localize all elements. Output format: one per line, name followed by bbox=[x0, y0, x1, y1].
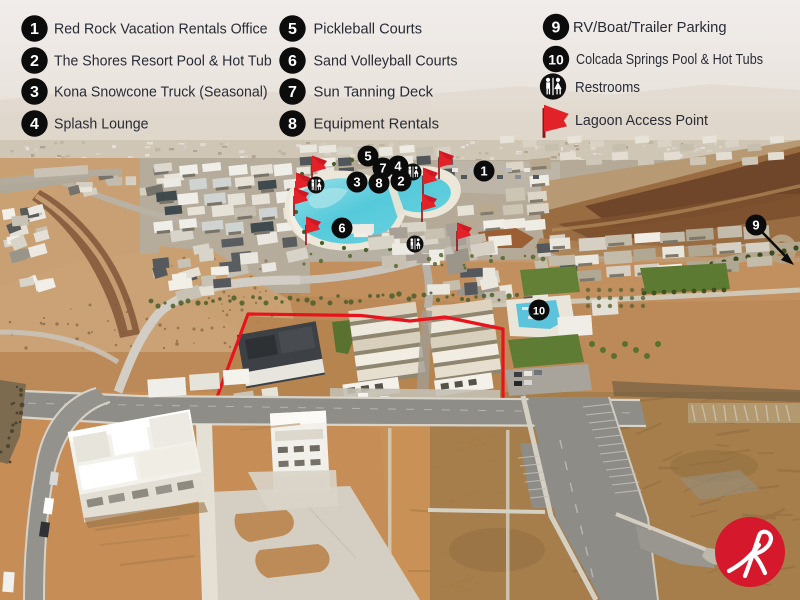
svg-text:The Shores Resort Pool & Hot T: The Shores Resort Pool & Hot Tub bbox=[54, 54, 272, 70]
svg-text:Colcada Springs Pool & Hot Tub: Colcada Springs Pool & Hot Tubs bbox=[576, 52, 763, 68]
svg-text:9: 9 bbox=[552, 20, 561, 37]
svg-text:4: 4 bbox=[30, 116, 39, 133]
svg-text:Lagoon Access Point: Lagoon Access Point bbox=[575, 113, 708, 129]
svg-text:2: 2 bbox=[30, 53, 39, 70]
svg-text:4: 4 bbox=[394, 159, 402, 174]
svg-text:1: 1 bbox=[480, 164, 487, 179]
svg-text:10: 10 bbox=[533, 306, 545, 318]
svg-text:9: 9 bbox=[752, 218, 759, 233]
svg-text:RV/Boat/Trailer Parking: RV/Boat/Trailer Parking bbox=[573, 20, 727, 36]
svg-text:Sun Tanning Deck: Sun Tanning Deck bbox=[314, 85, 434, 101]
svg-text:5: 5 bbox=[288, 21, 297, 38]
svg-text:Kona Snowcone Truck (Seasonal): Kona Snowcone Truck (Seasonal) bbox=[54, 85, 268, 101]
svg-text:3: 3 bbox=[353, 175, 360, 190]
svg-text:3: 3 bbox=[30, 84, 39, 101]
svg-text:Restrooms: Restrooms bbox=[575, 80, 640, 96]
svg-text:8: 8 bbox=[288, 116, 297, 133]
svg-text:10: 10 bbox=[548, 52, 564, 68]
svg-text:Splash Lounge: Splash Lounge bbox=[54, 117, 149, 133]
svg-text:8: 8 bbox=[375, 176, 382, 191]
svg-text:6: 6 bbox=[288, 53, 297, 70]
svg-text:Pickleball Courts: Pickleball Courts bbox=[314, 22, 423, 38]
svg-text:6: 6 bbox=[338, 221, 345, 236]
svg-text:1: 1 bbox=[30, 21, 39, 38]
svg-text:Equipment Rentals: Equipment Rentals bbox=[314, 117, 440, 133]
svg-text:Red Rock Vacation Rentals Offi: Red Rock Vacation Rentals Office bbox=[54, 22, 268, 38]
svg-text:5: 5 bbox=[364, 149, 371, 164]
svg-text:7: 7 bbox=[288, 84, 297, 101]
svg-text:Sand Volleyball Courts: Sand Volleyball Courts bbox=[314, 54, 458, 70]
